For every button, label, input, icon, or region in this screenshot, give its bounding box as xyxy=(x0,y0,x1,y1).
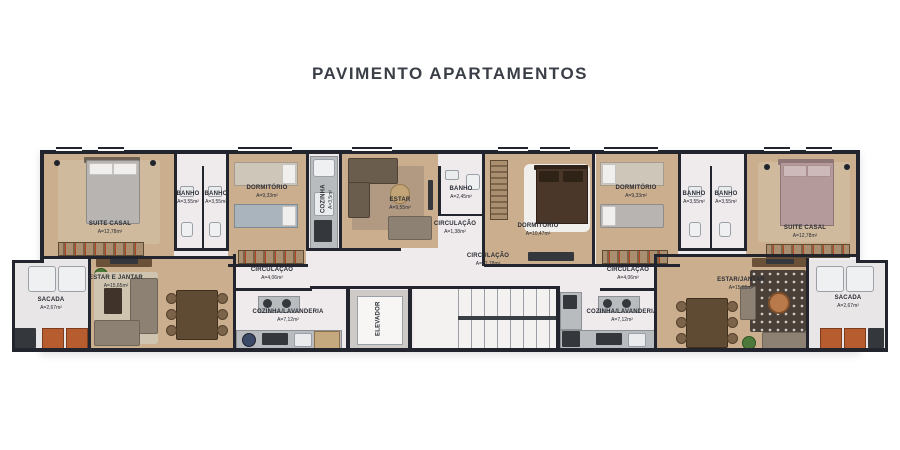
tv-console xyxy=(528,252,574,261)
balcony-chair xyxy=(28,266,56,292)
window xyxy=(806,147,832,153)
room-label-estar-jantar-right: ESTAR/JANTARA=15,65m² xyxy=(705,276,777,292)
chair xyxy=(676,301,687,312)
nightstand-lamp xyxy=(54,160,60,166)
room-label-banho-left-2: BANHOA=3,55m² xyxy=(202,190,230,206)
window xyxy=(764,147,790,153)
pillow xyxy=(563,171,583,182)
room-label-circulacao-right: CIRCULAÇÃOA=4,06m² xyxy=(596,266,660,282)
stair-rail xyxy=(458,316,556,320)
room-label-circulacao-left: CIRCULAÇÃOA=4,06m² xyxy=(240,266,304,282)
oven xyxy=(563,295,577,309)
wall xyxy=(678,248,747,251)
chair xyxy=(217,309,228,320)
washer xyxy=(242,333,256,347)
vent-unit xyxy=(868,328,884,348)
wall xyxy=(806,258,809,350)
wall xyxy=(408,286,412,350)
wall xyxy=(40,150,44,262)
room-label-circulacao-small: CIRCULAÇÃOA=1,38m² xyxy=(425,220,485,236)
room-label-cozinha-upper: COZINHAA=3,5m² xyxy=(318,172,336,226)
wall xyxy=(592,150,595,266)
chair xyxy=(676,317,687,328)
counter-wood xyxy=(314,331,340,349)
pillow xyxy=(807,165,831,177)
wall xyxy=(856,260,888,263)
room-label-dormitorio-left: DORMITÓRIOA=9,33m² xyxy=(231,184,303,200)
wardrobe xyxy=(58,242,144,256)
dining-table xyxy=(176,290,218,340)
wall xyxy=(306,150,309,250)
planter xyxy=(42,328,64,350)
toilet xyxy=(719,222,731,237)
window xyxy=(498,147,528,153)
chair xyxy=(727,317,738,328)
wall xyxy=(600,288,656,291)
wardrobe xyxy=(490,160,508,220)
burner xyxy=(603,299,612,308)
room-label-sacada-right: SACADAA=2,67m² xyxy=(818,294,878,310)
wall xyxy=(438,214,484,216)
window xyxy=(604,147,658,153)
wall xyxy=(744,150,747,250)
room-label-banho-right-1: BANHOA=3,55m² xyxy=(680,190,708,206)
planter xyxy=(820,328,842,350)
floor-plan-page: PAVIMENTO APARTAMENTOS xyxy=(0,0,900,450)
wardrobe xyxy=(602,250,668,264)
burner xyxy=(263,299,272,308)
dining-table xyxy=(686,298,728,348)
chair xyxy=(166,309,177,320)
sofa xyxy=(348,182,370,218)
pillow xyxy=(602,206,616,226)
pillow xyxy=(282,164,296,184)
room-label-dormitorio-right: DORMITÓRIOA=9,33m² xyxy=(600,184,672,200)
pillow xyxy=(113,163,137,175)
wall xyxy=(40,150,860,154)
planter xyxy=(66,328,88,350)
room-label-suite-casal-right: SUITE CASALA=12,78m² xyxy=(765,224,845,240)
sofa xyxy=(348,158,398,184)
wall xyxy=(710,166,712,248)
wall xyxy=(202,166,204,248)
wall xyxy=(482,150,485,266)
pillow xyxy=(282,206,296,226)
window xyxy=(352,147,392,153)
room-label-elevador: ELEVADOR xyxy=(366,296,392,342)
fridge xyxy=(562,331,580,347)
wall xyxy=(174,248,229,251)
wall xyxy=(856,150,860,262)
window xyxy=(98,147,124,153)
room-label-cozinha-lavanderia-right: COZINHA/LAVANDERIAA=7,12m² xyxy=(574,308,670,324)
wall xyxy=(306,248,342,251)
chair xyxy=(676,333,687,344)
bathroom-sink xyxy=(445,170,459,180)
planter xyxy=(844,328,866,350)
room-label-banho-right-2: BANHOA=3,55m² xyxy=(712,190,740,206)
pillow xyxy=(602,164,616,184)
nightstand-lamp xyxy=(764,164,770,170)
wall xyxy=(339,150,342,250)
room-label-estar-jantar-left: ESTAR E JANTARA=15,65m² xyxy=(80,274,152,290)
room-label-estar: ESTARA=9,55m² xyxy=(375,196,425,212)
stove xyxy=(596,333,622,345)
window xyxy=(56,147,82,153)
wall xyxy=(339,248,401,251)
chair xyxy=(217,293,228,304)
room-label-dormitorio-center: DORMITÓRIOA=10,47m² xyxy=(502,222,574,238)
pillow xyxy=(89,163,113,175)
coffee-table xyxy=(104,288,122,314)
wardrobe xyxy=(238,250,304,264)
pillow xyxy=(539,171,559,182)
chair xyxy=(727,333,738,344)
wall xyxy=(556,286,560,350)
vent-unit xyxy=(14,328,36,348)
wall xyxy=(88,258,91,350)
wall xyxy=(654,254,858,257)
toilet xyxy=(209,222,221,237)
pillow xyxy=(783,165,807,177)
burner xyxy=(622,299,631,308)
tv xyxy=(766,259,794,264)
wall xyxy=(12,260,44,263)
rug-medallion xyxy=(768,292,790,314)
wall xyxy=(346,286,350,350)
wall xyxy=(885,260,888,350)
wall xyxy=(236,288,312,291)
tv-panel xyxy=(428,180,433,210)
window xyxy=(540,147,570,153)
room-label-banho-left-1: BANHOA=3,55m² xyxy=(174,190,202,206)
chair xyxy=(217,325,228,336)
kitchen-sink xyxy=(294,333,312,347)
nightstand-lamp xyxy=(150,160,156,166)
nightstand-lamp xyxy=(844,164,850,170)
wall xyxy=(233,254,236,350)
chair xyxy=(727,301,738,312)
chair xyxy=(166,325,177,336)
balcony-chair xyxy=(846,266,874,292)
room-label-sacada-left: SACADAA=2,67m² xyxy=(21,296,81,312)
toilet xyxy=(689,222,701,237)
stove xyxy=(262,333,288,345)
window xyxy=(238,147,292,153)
chair xyxy=(166,293,177,304)
burner xyxy=(282,299,291,308)
floor-plan: SUITE CASALA=12,78m² BANHOA=3,55m² BANHO… xyxy=(0,0,900,450)
sofa xyxy=(94,320,140,346)
tv xyxy=(110,259,138,264)
toilet xyxy=(181,222,193,237)
kitchen-sink xyxy=(628,333,646,347)
room-label-circulacao-central: CIRCULAÇÃOA=12,78m² xyxy=(448,252,528,268)
room-label-banho-center: BANHOA=2,45m² xyxy=(440,186,482,200)
wall xyxy=(12,260,15,350)
balcony-chair xyxy=(816,266,844,292)
room-label-suite-casal-left: SUITE CASALA=12,78m² xyxy=(70,220,150,236)
wall xyxy=(12,348,888,352)
wall xyxy=(40,256,236,259)
room-label-cozinha-lavanderia-left: COZINHA/LAVANDERIAA=7,12m² xyxy=(240,308,336,324)
